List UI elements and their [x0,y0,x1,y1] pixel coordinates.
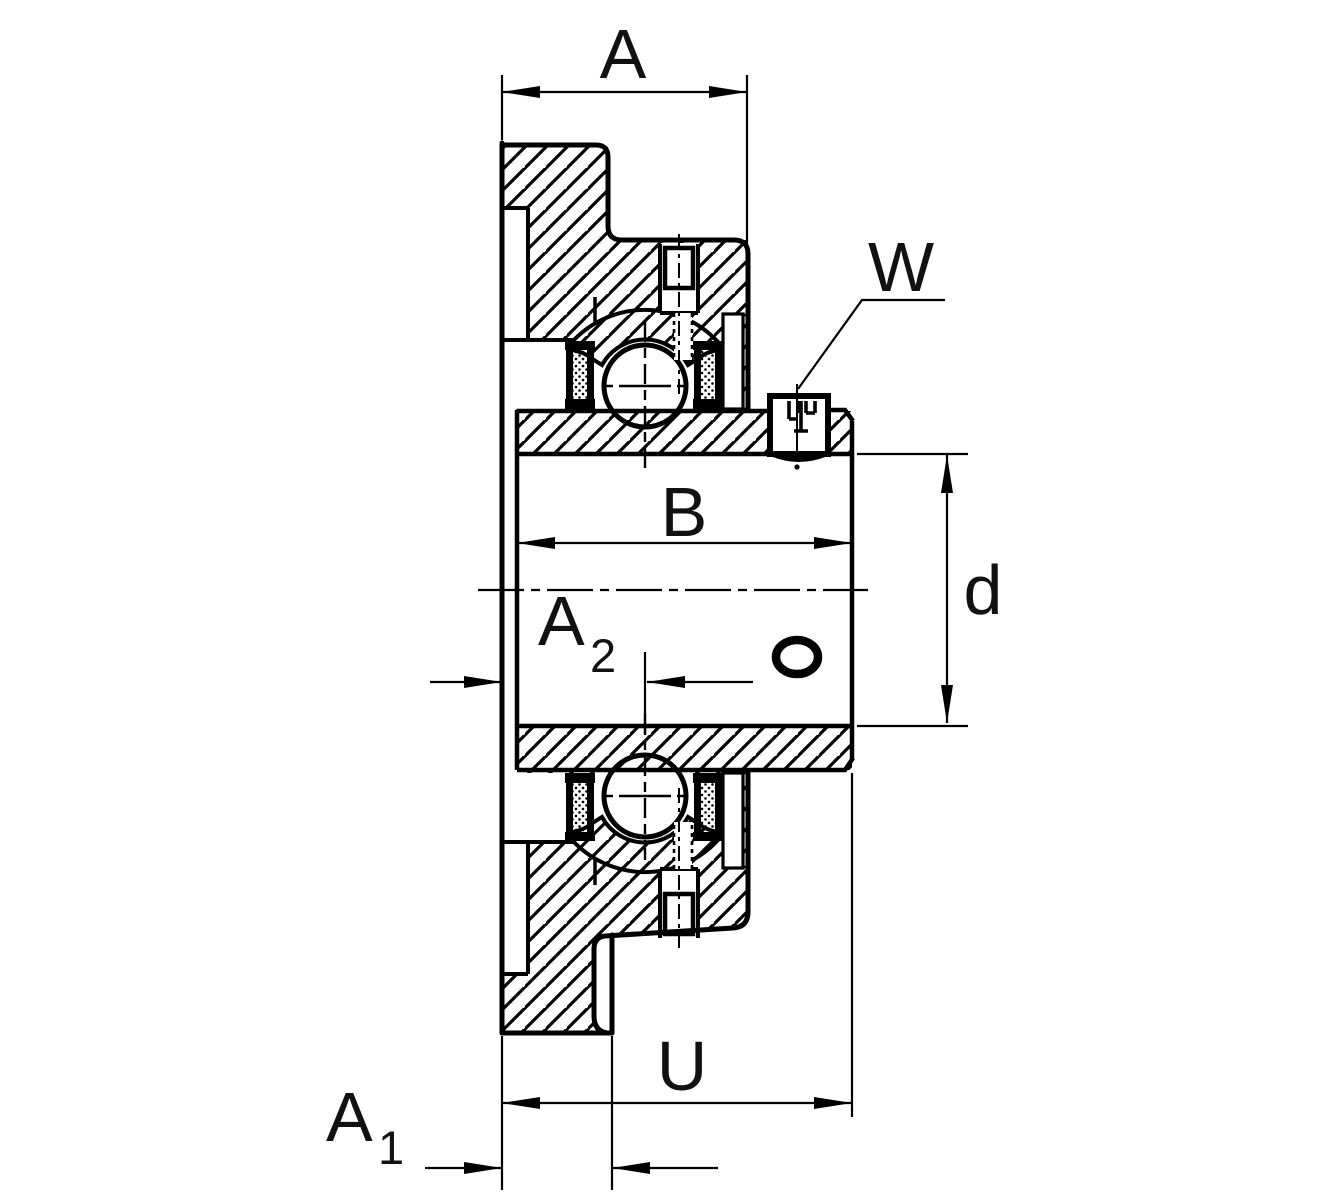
dim-label-a: A [600,15,647,93]
dim-label-w: W [868,228,934,306]
dim-label-a2: A [538,582,585,660]
dim-label-a1-sub: 1 [378,1121,404,1174]
dim-label-d: d [964,551,1003,629]
grease-nipple [770,384,828,470]
dim-label-b: B [661,473,708,551]
leader-w [798,300,945,389]
dim-label-a2-sub: 2 [590,629,616,682]
bearing-unit-section-drawing: A W B d A 2 U A 1 [0,0,1330,1200]
flange-bore-gap [503,341,516,843]
oil-hole [776,640,818,674]
technical-drawing-canvas: A W B d A 2 U A 1 [0,0,1330,1200]
dim-label-a1: A [326,1078,373,1156]
dim-label-u: U [657,1027,708,1105]
